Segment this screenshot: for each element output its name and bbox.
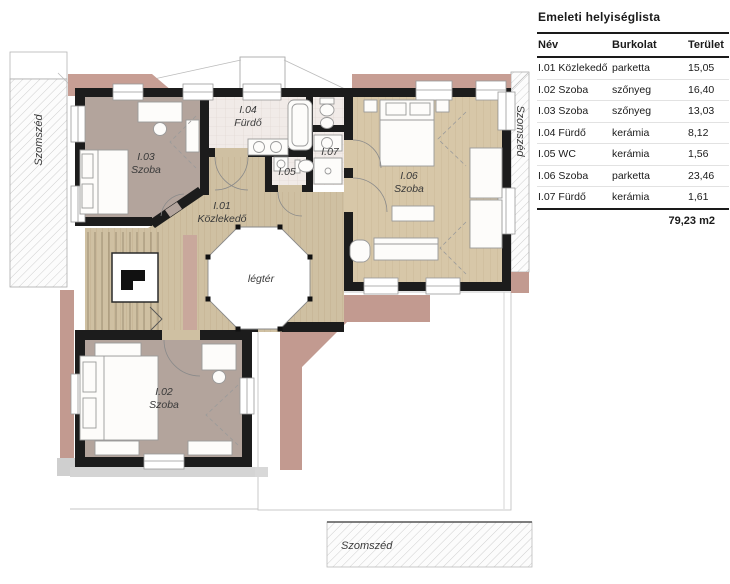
label-i03-id: I.03 (137, 151, 155, 163)
cell-name: I.05 WC (538, 148, 612, 160)
label-i05-id: I.05 (278, 166, 296, 178)
i03-bed (80, 150, 128, 214)
window-top-2 (183, 84, 213, 100)
cell-area: 1,61 (688, 191, 730, 203)
label-i04-name: Fürdő (234, 117, 262, 129)
total-area: 79,23 m2 (669, 215, 715, 227)
floorplan-page: Szomszéd Szomszéd (0, 0, 730, 584)
i03-wardrobe (186, 120, 199, 152)
table-row: I.07 Fürdő kerámia 1,61 (537, 187, 729, 208)
i06-nightstand-left (364, 100, 377, 112)
page-title: Emeleti helyiséglista (538, 10, 729, 24)
door-gap-i04 (215, 148, 248, 157)
cell-finish: parketta (612, 170, 688, 182)
i02-cabinet-right (188, 441, 232, 455)
corridor-accent-strip (183, 235, 197, 330)
label-i01-id: I.01 (213, 200, 231, 212)
i05-toilet (295, 160, 314, 173)
i06-table (392, 206, 434, 221)
wall-i03-i04-separator (200, 97, 209, 195)
i03-chair (154, 123, 167, 136)
i06-bed (380, 100, 434, 166)
cell-area: 23,46 (688, 170, 730, 182)
window-top-1 (113, 84, 143, 100)
cell-finish: kerámia (612, 127, 688, 139)
cell-name: I.03 Szoba (538, 105, 612, 117)
window-i06-bottom-2 (426, 278, 460, 294)
window-i02-right (240, 378, 254, 414)
i04-bathtub (288, 100, 312, 150)
window-top-3 (243, 84, 281, 100)
table-row: I.06 Szoba parketta 23,46 (537, 166, 729, 188)
i06-sofa (374, 238, 438, 260)
window-right-1 (498, 92, 515, 130)
label-i02-id: I.02 (155, 386, 173, 398)
cell-finish: kerámia (612, 191, 688, 203)
cell-area: 16,40 (688, 84, 730, 96)
roof-pink-right-strip (511, 272, 529, 293)
table-row: I.05 WC kerámia 1,56 (537, 144, 729, 166)
i06-nightstand-right (436, 100, 449, 112)
table-header-row: Név Burkolat Terület (537, 34, 729, 58)
room-list-panel: Emeleti helyiséglista Név Burkolat Terül… (537, 10, 729, 231)
neighbor-strip-bottom: Szomszéd (327, 522, 532, 567)
table-row: I.01 Közlekedő parketta 15,05 (537, 58, 729, 80)
i06-wardrobe-1 (470, 148, 502, 198)
cell-name: I.06 Szoba (538, 170, 612, 182)
col-header-name: Név (538, 39, 612, 51)
label-i04-id: I.04 (239, 104, 257, 116)
cell-finish: kerámia (612, 148, 688, 160)
door-gap-i07 (344, 140, 353, 168)
wall-south-right (282, 322, 344, 332)
cell-finish: szőnyeg (612, 84, 688, 96)
cell-name: I.01 Közlekedő (538, 62, 612, 74)
i02-bed (80, 356, 158, 440)
cell-finish: parketta (612, 62, 688, 74)
label-i06-id: I.06 (400, 170, 418, 182)
label-i06-name: Szoba (394, 183, 424, 195)
col-header-area: Terület (688, 39, 730, 51)
col-header-finish: Burkolat (612, 39, 688, 51)
neighbor-right-label: Szomszéd (514, 105, 526, 157)
i02-desk (202, 344, 236, 370)
i07-shower (314, 158, 342, 184)
door-gap-i05 (278, 185, 302, 192)
left-hatch-area (10, 79, 67, 287)
wall-i03-bottom (75, 217, 152, 226)
window-i06-bottom-1 (364, 278, 398, 294)
room-table: Név Burkolat Terület I.01 Közlekedő park… (537, 32, 729, 231)
neighbor-bottom-label: Szomszéd (341, 540, 393, 552)
i02-chair (213, 371, 226, 384)
i04-sink-counter (248, 139, 288, 155)
window-top-4 (416, 81, 452, 100)
neighbor-strip-left: Szomszéd (10, 52, 67, 287)
label-void: légtér (248, 273, 275, 285)
cell-area: 1,56 (688, 148, 730, 160)
label-i01-name: Közlekedő (197, 213, 246, 225)
table-row: I.03 Szoba szőnyeg 13,03 (537, 101, 729, 123)
cell-area: 8,12 (688, 127, 730, 139)
cell-name: I.02 Szoba (538, 84, 612, 96)
table-total-row: 79,23 m2 (537, 208, 729, 231)
neighbor-left-label: Szomszéd (33, 113, 45, 165)
window-left-1 (71, 106, 85, 142)
i06-wardrobe-2 (470, 200, 502, 248)
cell-name: I.07 Fürdő (538, 191, 612, 203)
floor-plan: Szomszéd Szomszéd (0, 0, 535, 584)
window-i02-bottom (144, 454, 184, 469)
i03-desk (138, 102, 182, 122)
label-i02-name: Szoba (149, 399, 179, 411)
table-row: I.04 Fürdő kerámia 8,12 (537, 123, 729, 145)
label-i07-id: I.07 (321, 146, 340, 158)
table-row: I.02 Szoba szőnyeg 16,40 (537, 80, 729, 102)
i02-cabinet-left (95, 441, 139, 455)
cell-area: 13,03 (688, 105, 730, 117)
i06-armchair (350, 240, 370, 262)
i02-shelf (95, 343, 141, 356)
door-gap-i06 (344, 178, 353, 212)
label-i03-name: Szoba (131, 164, 161, 176)
cell-name: I.04 Fürdő (538, 127, 612, 139)
left-eave-box (10, 52, 67, 79)
cell-finish: szőnyeg (612, 105, 688, 117)
i04-toilet (320, 98, 334, 129)
cell-area: 15,05 (688, 62, 730, 74)
door-gap-i02 (162, 330, 200, 340)
